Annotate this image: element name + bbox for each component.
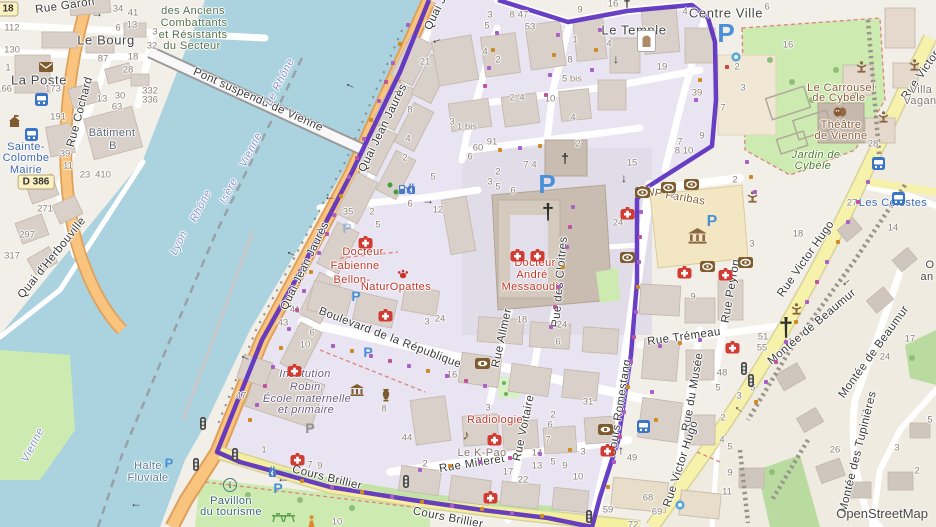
poi-dot: [650, 390, 654, 394]
poi-dot: [568, 448, 572, 452]
poi-dot: [612, 460, 616, 464]
poi-dot: [694, 98, 698, 102]
map-base: [0, 0, 936, 527]
poi-dot: [508, 456, 512, 460]
poi-dot: [445, 374, 449, 378]
poi-dot: [698, 338, 702, 342]
poi-dot: [698, 78, 702, 82]
poi-dot: [745, 160, 749, 164]
poi-dot: [639, 210, 643, 214]
poi-dot: [774, 360, 778, 364]
poi-dot: [565, 245, 569, 249]
poi-dot: [369, 118, 373, 122]
poi-dot: [805, 300, 809, 304]
poi-dot: [487, 66, 491, 70]
poi-dot: [255, 403, 259, 407]
poi-dot: [271, 365, 275, 369]
poi-dot: [654, 418, 658, 422]
poi-dot: [598, 28, 602, 32]
poi-dot: [557, 285, 561, 289]
poi-dot: [606, 485, 610, 489]
poi-dot: [632, 335, 636, 339]
poi-dot: [300, 479, 304, 483]
poi-dot: [754, 400, 758, 404]
poi-dot: [309, 270, 313, 274]
poi-dot: [331, 344, 335, 348]
poi-dot: [815, 280, 819, 284]
poi-dot: [725, 65, 729, 69]
poi-dot: [629, 360, 633, 364]
poi-dot: [248, 418, 252, 422]
poi-dot: [618, 435, 622, 439]
poi-dot: [544, 93, 548, 97]
poi-dot: [480, 507, 484, 511]
poi-dot: [464, 379, 468, 383]
poi-dot: [678, 341, 682, 345]
poi-dot: [548, 73, 552, 77]
poi-dot: [384, 80, 388, 84]
poi-dot: [362, 137, 366, 141]
poi-dot: [540, 514, 544, 518]
poi-dot: [332, 213, 336, 217]
poi-dot: [339, 194, 343, 198]
poi-dot: [450, 504, 454, 508]
poi-dot: [420, 500, 424, 504]
poi-dot: [538, 144, 542, 148]
poi-dot: [590, 68, 594, 72]
poi-dot: [836, 240, 840, 244]
poi-dot: [388, 359, 392, 363]
poi-dot: [406, 23, 410, 27]
poi-dot: [794, 320, 798, 324]
poi-dot: [448, 464, 452, 468]
poi-dot: [571, 205, 575, 209]
poi-dot: [636, 285, 640, 289]
poi-dot: [637, 260, 641, 264]
poi-dot: [634, 310, 638, 314]
poi-dot: [483, 84, 487, 88]
poi-dot: [325, 232, 329, 236]
poi-dot: [518, 146, 522, 150]
poi-dot: [369, 354, 373, 358]
poi-dot: [638, 235, 642, 239]
poi-dot: [418, 468, 422, 472]
poi-dot: [377, 99, 381, 103]
poi-dot: [483, 384, 487, 388]
poi-dot: [626, 385, 630, 389]
poi-dot: [279, 346, 283, 350]
poi-dot: [749, 175, 753, 179]
map-attribution[interactable]: OpenStreetMap: [836, 506, 928, 521]
poi-dot: [350, 349, 354, 353]
poi-dot: [263, 384, 267, 388]
poi-dot: [784, 340, 788, 344]
poi-dot: [360, 490, 364, 494]
poi-dot: [407, 364, 411, 368]
poi-dot: [355, 156, 359, 160]
poi-dot: [330, 485, 334, 489]
poi-dot: [478, 460, 482, 464]
poi-dot: [549, 325, 553, 329]
poi-dot: [347, 175, 351, 179]
poi-dot: [495, 31, 499, 35]
poi-dot: [491, 48, 495, 52]
poi-dot: [866, 180, 870, 184]
poi-dot: [622, 410, 626, 414]
poi-dot: [317, 251, 321, 255]
poi-dot: [510, 511, 514, 515]
poi-dot: [561, 265, 565, 269]
poi-dot: [568, 225, 572, 229]
poi-dot: [753, 190, 757, 194]
poi-dot: [846, 220, 850, 224]
poi-dot: [556, 33, 560, 37]
poi-dot: [553, 305, 557, 309]
poi-dot: [391, 61, 395, 65]
map-canvas[interactable]: Rue GaronRue CochardQuai d'HerbouvilleQu…: [0, 0, 936, 527]
poi-dot: [287, 327, 291, 331]
poi-dot: [498, 148, 502, 152]
poi-dot: [426, 369, 430, 373]
poi-dot: [398, 42, 402, 46]
poi-dot: [764, 380, 768, 384]
poi-dot: [825, 260, 829, 264]
poi-dot: [538, 452, 542, 456]
poi-dot: [594, 48, 598, 52]
poi-dot: [295, 308, 299, 312]
poi-dot: [856, 200, 860, 204]
poi-dot: [390, 495, 394, 499]
poi-dot: [658, 344, 662, 348]
poi-dot: [552, 53, 556, 57]
poi-dot: [302, 289, 306, 293]
